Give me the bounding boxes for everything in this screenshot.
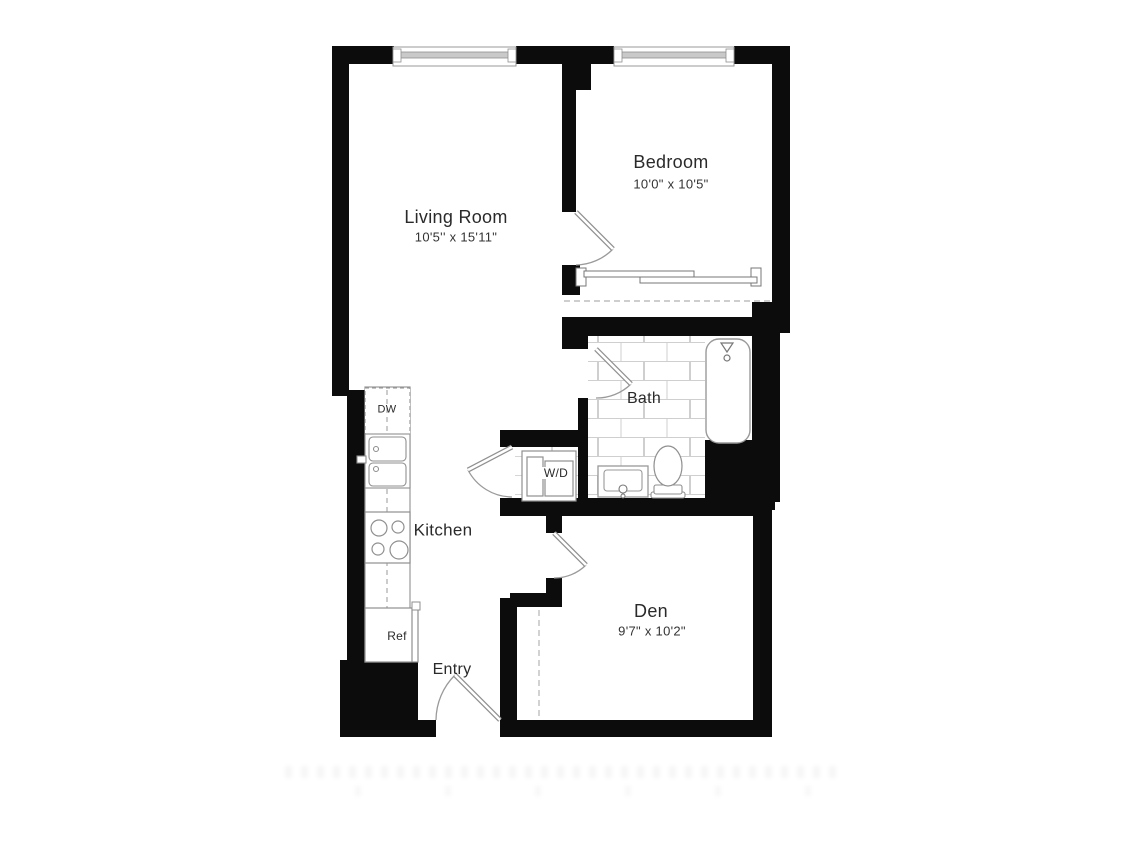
den-door bbox=[554, 533, 586, 578]
bath-label: Bath bbox=[627, 391, 661, 407]
bedroom-door bbox=[576, 212, 613, 265]
stove-4-burner-icon bbox=[365, 512, 410, 563]
refrigerator-label: Ref bbox=[387, 630, 407, 642]
bathroom-sink-icon bbox=[598, 466, 648, 498]
washer-dryer-label: W/D bbox=[542, 467, 570, 479]
bedroom-dimensions: 10'0" x 10'5" bbox=[633, 178, 708, 191]
entry-door bbox=[436, 675, 500, 720]
double-window-icon bbox=[393, 49, 401, 62]
floor-plan: Living Room 10'5'' x 15'11" Bedroom 10'0… bbox=[0, 0, 1125, 844]
double-window-icon bbox=[614, 49, 622, 62]
wd-closet-door bbox=[468, 447, 512, 497]
sliding-bypass-closet-door-icon bbox=[576, 268, 761, 286]
living-room-window bbox=[393, 47, 516, 66]
kitchen-label: Kitchen bbox=[414, 522, 473, 539]
kitchen-counter bbox=[357, 387, 420, 662]
floor-plan-drawing bbox=[0, 0, 1125, 844]
living-room-label: Living Room bbox=[404, 208, 507, 226]
den-label: Den bbox=[634, 602, 668, 620]
watermark-smudge bbox=[285, 760, 845, 802]
den-dimensions: 9'7" x 10'2" bbox=[618, 625, 686, 638]
double-kitchen-sink-icon bbox=[357, 434, 410, 488]
bedroom-closet bbox=[564, 268, 770, 301]
bathtub-icon bbox=[706, 339, 750, 443]
bedroom-window bbox=[614, 47, 734, 66]
living-room-dimensions: 10'5'' x 15'11" bbox=[415, 231, 497, 244]
bedroom-label: Bedroom bbox=[633, 153, 708, 171]
entry-label: Entry bbox=[433, 662, 472, 678]
dishwasher-label: DW bbox=[378, 405, 397, 416]
